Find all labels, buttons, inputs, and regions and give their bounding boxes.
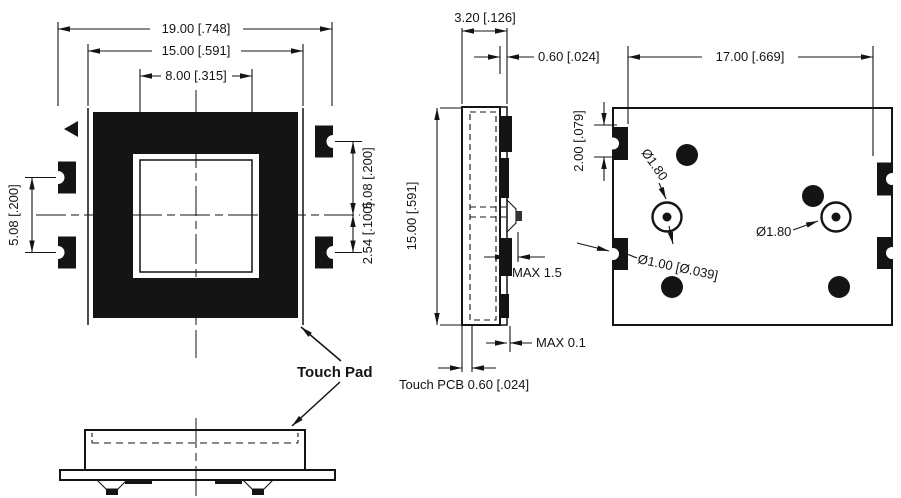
dim-right-pad-offset-label: 2.54 [.100] <box>360 203 375 264</box>
dim-pad-span-label: 17.00 [.669] <box>716 49 785 64</box>
dim-touch-pcb-label: Touch PCB 0.60 [.024] <box>399 377 529 392</box>
dim-hole-left: Ø1.80 <box>638 146 671 199</box>
side-body-outline <box>462 107 500 325</box>
dim-body-width-label: 15.00 [.591] <box>162 43 231 58</box>
back-mount-hole-left <box>653 203 682 232</box>
side-view: 15.00 [.591] 3.20 [.126] 0.60 [.024] MAX… <box>399 10 599 392</box>
touch-pad-drawing: 19.00 [.748] 15.00 [.591] 8.00 [.315] 5.… <box>0 0 901 498</box>
side-hidden-outline <box>470 112 496 320</box>
bottom-feet <box>97 480 273 495</box>
touch-pad-callout-label: Touch Pad <box>297 364 373 381</box>
front-view: 19.00 [.748] 15.00 [.591] 8.00 [.315] 5.… <box>6 21 375 358</box>
back-view: 17.00 [.669] 2.00 [.079] Ø1.80 Ø1.80 Ø1.… <box>571 46 898 325</box>
dim-left-pad-pitch-label: 5.08 [.200] <box>6 184 21 245</box>
technical-drawing-page: 19.00 [.748] 15.00 [.591] 8.00 [.315] 5.… <box>0 0 901 498</box>
back-mount-hole-right <box>822 203 851 232</box>
back-right-pads <box>877 163 898 270</box>
dim-pcb-thickness-label: 0.60 [.024] <box>538 49 599 64</box>
dim-pad-span: 17.00 [.669] <box>628 46 873 156</box>
dim-window-width-label: 8.00 [.315] <box>165 68 226 83</box>
bottom-body-outline <box>85 430 305 470</box>
dim-hole-right: Ø1.80 <box>756 221 818 239</box>
side-contact-bump-tip <box>516 211 522 221</box>
dim-outer-width: 19.00 [.748] <box>58 21 332 106</box>
dim-pad-max: MAX 0.1 <box>486 326 586 352</box>
dim-pad-height-label: 2.00 [.079] <box>571 110 586 171</box>
bottom-profile-view <box>60 418 335 498</box>
dim-hole-right-label: Ø1.80 <box>756 224 791 239</box>
dim-hole-left-label: Ø1.80 <box>638 146 671 184</box>
dim-outer-width-label: 19.00 [.748] <box>162 21 231 36</box>
back-left-pads <box>607 127 628 270</box>
bottom-pcb-plate <box>60 470 335 480</box>
side-contact-bump <box>507 200 516 232</box>
dim-right-pad-pitch-label: 5.08 [.200] <box>360 147 375 208</box>
dim-side-height-label: 15.00 [.591] <box>404 182 419 251</box>
dim-bump-max-label: MAX 1.5 <box>512 265 562 280</box>
dim-total-thickness-label: 3.20 [.126] <box>454 10 515 25</box>
dim-side-height: 15.00 [.591] <box>404 108 461 325</box>
dim-right-pad-dims: 5.08 [.200] 2.54 [.100] <box>335 142 375 265</box>
dim-pad-max-label: MAX 0.1 <box>536 335 586 350</box>
dim-via: Ø1.00 [Ø.039] <box>577 226 719 283</box>
dim-pcb-thickness: 0.60 [.024] <box>474 46 599 74</box>
touch-pad-callout: Touch Pad <box>292 327 373 426</box>
